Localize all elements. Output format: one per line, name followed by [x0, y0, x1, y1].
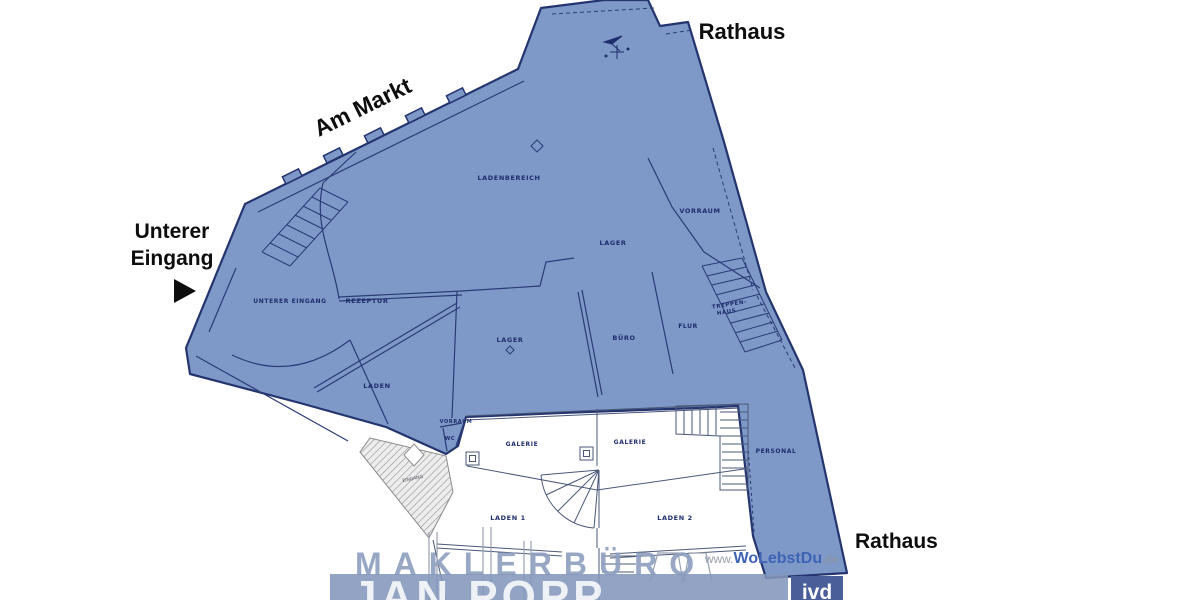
- room-label: FLUR: [678, 323, 698, 330]
- entrance-arrow-icon: [174, 279, 196, 303]
- room-label: GALERIE: [614, 439, 647, 446]
- room-label: UNTERER EINGANG: [253, 298, 326, 305]
- broker-name-band-text: JAN POPP: [352, 572, 607, 600]
- highlighted-unit-area: [186, 0, 847, 578]
- room-label: LADEN 1: [490, 514, 525, 522]
- room-label: LADEN: [363, 382, 390, 390]
- hatched-entrance-area: [360, 438, 453, 538]
- rathaus-bottom-label: Rathaus: [855, 530, 938, 553]
- ivd-badge-text: ivd: [802, 581, 832, 600]
- website-prefix: www.: [704, 552, 734, 566]
- room-label: REZEPTUR: [346, 297, 389, 305]
- floor-plan-page: LADENBEREICH VORRAUM LAGER UNTERER EINGA…: [0, 0, 1200, 600]
- room-label: LAGER: [600, 239, 627, 247]
- floor-plan-drawing: LADENBEREICH VORRAUM LAGER UNTERER EINGA…: [0, 0, 1200, 600]
- unterer-eingang-label-line1: Unterer: [135, 220, 210, 243]
- room-label: LADEN 2: [657, 514, 692, 522]
- room-label: GALERIE: [506, 441, 539, 448]
- ivd-badge: ivd: [791, 576, 843, 600]
- room-label: LAGER: [497, 336, 524, 344]
- website-name: WoLebstDu: [734, 550, 823, 567]
- room-label: VORRAUM: [679, 207, 720, 215]
- room-label: VORRAUM: [440, 419, 473, 425]
- website-suffix: .de: [822, 554, 838, 566]
- room-label: LADENBEREICH: [477, 174, 540, 182]
- unterer-eingang-label-line2: Eingang: [131, 247, 214, 270]
- rathaus-top-label: Rathaus: [699, 19, 786, 44]
- website-watermark: www.WoLebstDu.de: [704, 550, 838, 567]
- room-label: BÜRO: [612, 333, 635, 342]
- room-label: WC: [445, 436, 455, 442]
- room-label: PERSONAL: [756, 448, 797, 455]
